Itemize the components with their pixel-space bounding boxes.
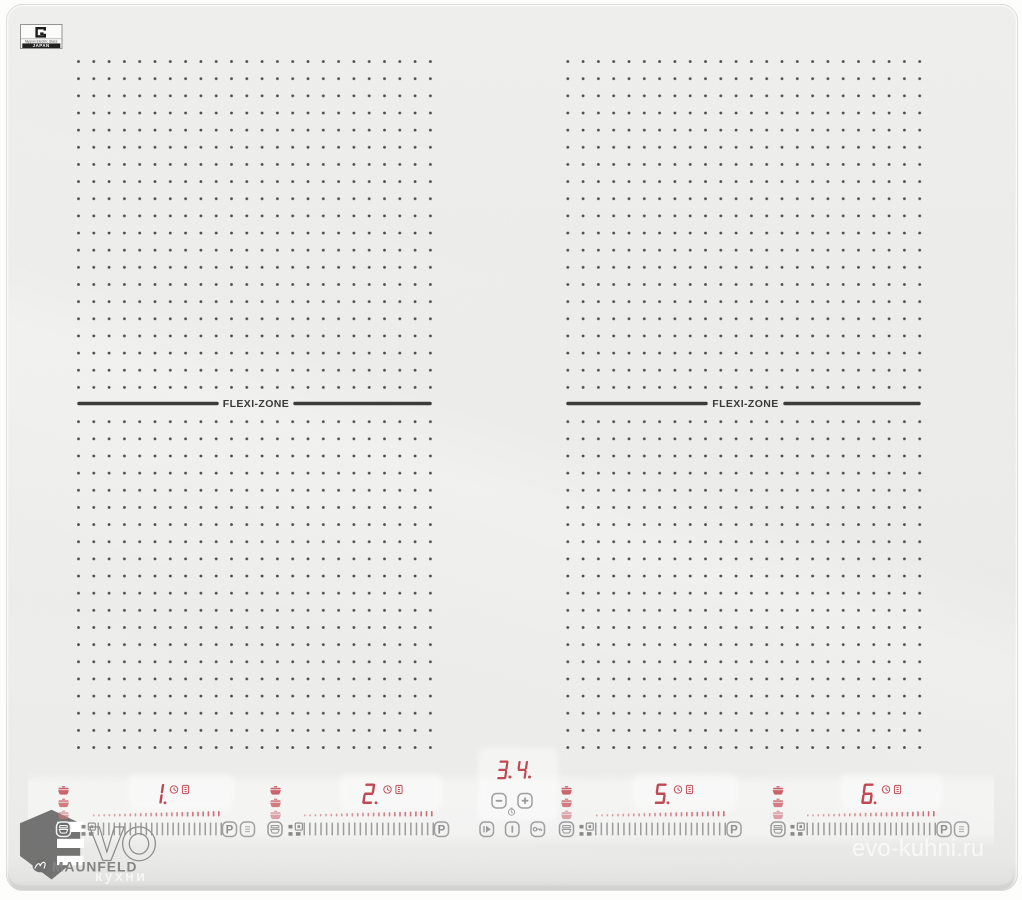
svg-text:evo-kuhni.ru: evo-kuhni.ru [852,835,984,862]
svg-text:JAPAN: JAPAN [33,43,50,48]
svg-text:P: P [730,824,738,836]
svg-text:кухни: кухни [95,869,147,885]
svg-text:FLEXI-ZONE: FLEXI-ZONE [712,398,778,410]
svg-text:P: P [226,824,234,836]
svg-text:FLEXI-ZONE: FLEXI-ZONE [223,398,289,410]
svg-text:P: P [438,824,446,836]
